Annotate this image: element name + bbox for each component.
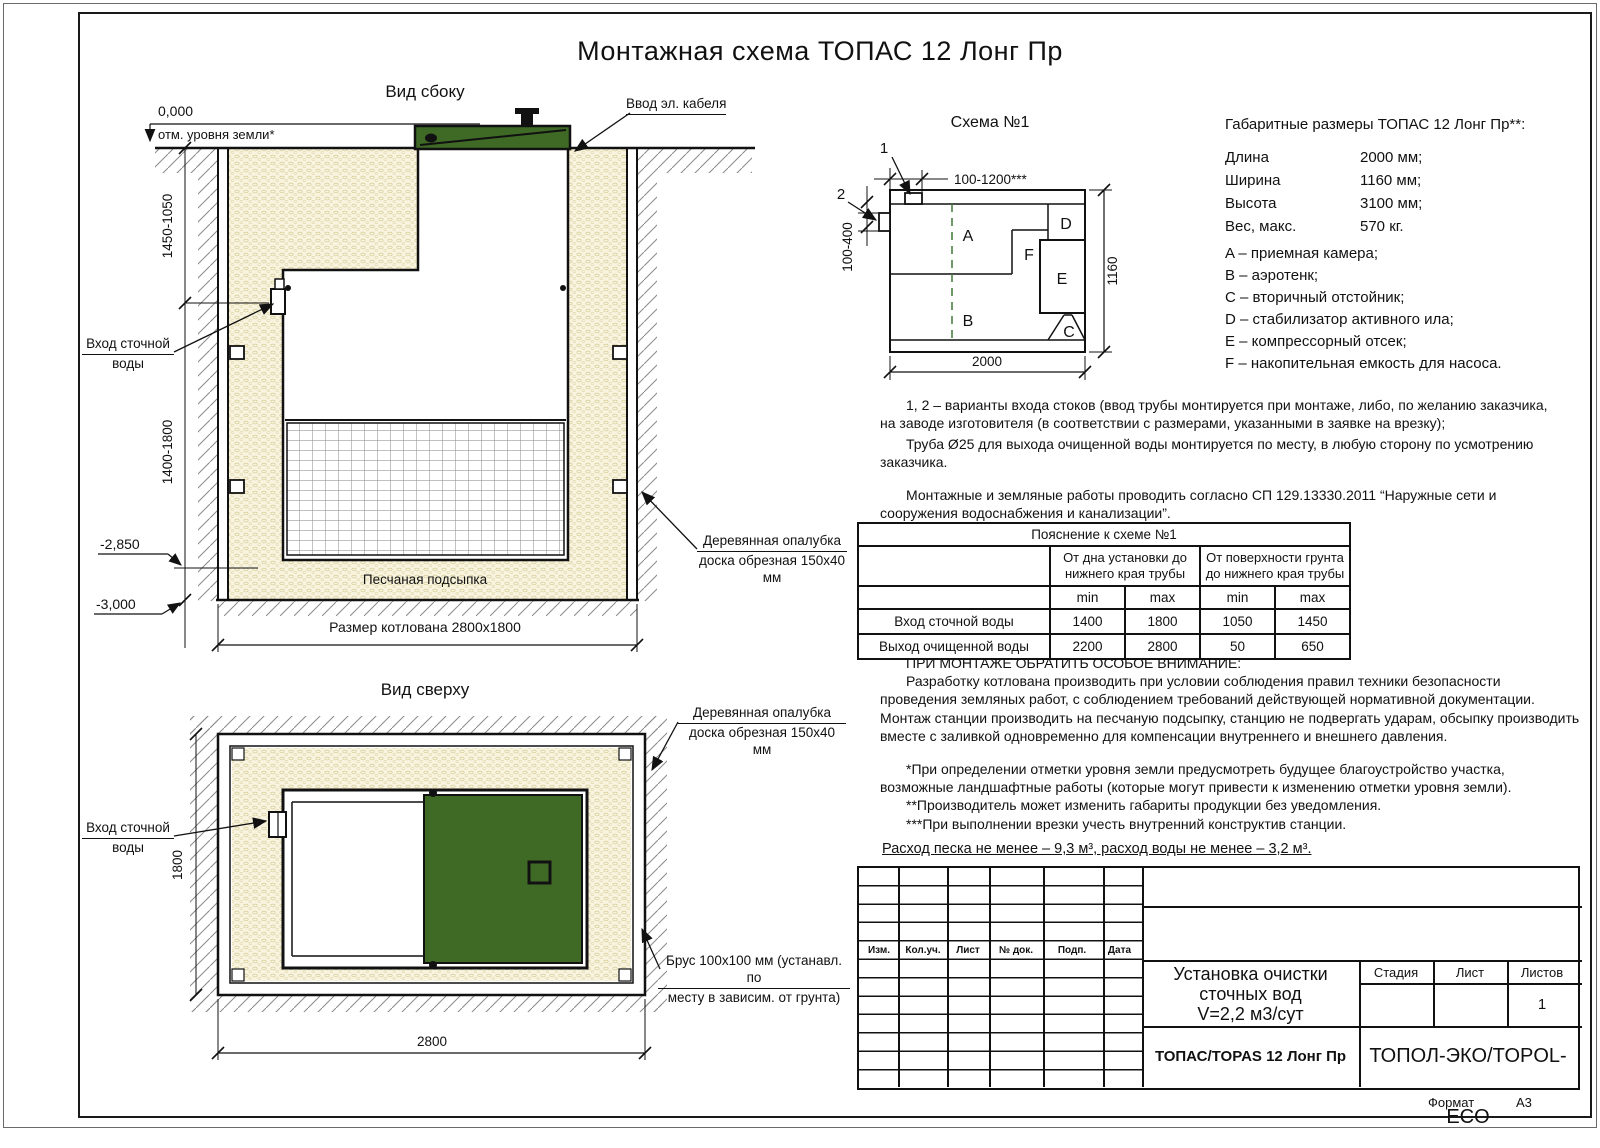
note-2: Труба Ø25 для выхода очищенной воды монт… [880, 435, 1556, 472]
legend-item: C – вторичный отстойник; [1225, 287, 1585, 309]
min-header: min [1200, 586, 1275, 609]
compartment-legend: A – приемная камера; B – аэротенк; C – в… [1225, 243, 1585, 375]
company-name: ТОПОЛ-ЭКО/TOPOL-ECO [1359, 1026, 1577, 1148]
tank-lid-top [424, 795, 582, 963]
max-header: max [1275, 586, 1350, 609]
inlet-label-top: Вход сточной воды [82, 820, 174, 857]
ground-level-label: отм. уровня земли* [158, 127, 275, 142]
top-view: 1800 2800 [170, 716, 678, 1060]
cable-entry-label: Ввод эл. кабеля [626, 96, 726, 115]
schema-explanation-table: Пояснение к схеме №1 От дна установки до… [857, 522, 1351, 660]
table-group-2: От поверхности грунта до нижнего края тр… [1200, 546, 1350, 586]
sheets-header: Листов [1507, 962, 1577, 983]
table-empty-cell [858, 546, 1050, 586]
schema-dim-top: 100-1200*** [954, 172, 1028, 187]
model-name: ТОПАС/TOPAS 12 Лонг Пр [1142, 1026, 1359, 1087]
legend-item: B – аэротенк; [1225, 265, 1585, 287]
inlet-label-side: Вход сточной воды [82, 336, 174, 373]
schema-comp-f: F [1024, 247, 1034, 264]
stamp-col-label: Изм. [859, 942, 899, 960]
bottom-elevation-mark: -3,000 [96, 596, 136, 612]
schema-comp-c: C [1063, 324, 1075, 341]
schema-ref-1: 1 [880, 140, 888, 157]
title-block: Изм. Кол.уч. Лист № док. Подп. Дата Уста… [857, 866, 1580, 1090]
schema-port-1 [905, 193, 922, 204]
lid-vent [515, 108, 539, 114]
spec-row: Высота3100 мм; [1225, 195, 1565, 212]
inlet-pipe-side [271, 289, 285, 314]
schema-comp-a: A [963, 228, 974, 245]
side-dim-lower: 1400-1800 [160, 420, 175, 485]
schema-dim-side: 100-400 [840, 222, 855, 272]
schema-ref-2: 2 [837, 186, 845, 203]
cable-leader [575, 113, 630, 151]
schema-dim-length: 2000 [972, 354, 1002, 369]
stamp-col-label: Кол.уч. [899, 942, 947, 960]
stamp-col-label: Дата [1101, 942, 1138, 960]
spec-row: Вес, макс.570 кг. [1225, 218, 1565, 235]
consumption-note: Расход песка не менее – 9,3 м³, расход в… [882, 841, 1582, 857]
installation-notes: 1, 2 – варианты входа стоков (ввод трубы… [880, 396, 1556, 525]
min-header: min [1050, 586, 1125, 609]
table-title: Пояснение к схеме №1 [858, 523, 1350, 546]
note-1: 1, 2 – варианты входа стоков (ввод трубы… [880, 396, 1556, 433]
legend-item: E – компрессорный отсек; [1225, 331, 1585, 353]
schema-comp-b: B [963, 313, 974, 330]
note-3: Монтажные и земляные работы проводить со… [880, 486, 1556, 523]
project-name: Установка очистки сточных вод V=2,2 м3/с… [1142, 964, 1359, 1024]
format-label: Формат [1428, 1095, 1474, 1110]
drawing-sheet: { "title": "Монтажная схема ТОПАС 12 Лон… [0, 0, 1600, 1131]
formwork-label-side: Деревянная опалубка доска обрезная 150x4… [697, 533, 847, 587]
footnotes-block: *При определении отметки уровня земли пр… [880, 760, 1580, 833]
footnote-1: *При определении отметки уровня земли пр… [880, 760, 1580, 796]
schema-port-2 [879, 213, 890, 231]
revision-grid-headers: Изм. Кол.уч. Лист № док. Подп. Дата [859, 942, 1142, 960]
sand-bed-label: Песчаная подсыпка [330, 572, 520, 587]
side-view-title: Вид сбоку [330, 82, 520, 102]
format-value: А3 [1516, 1095, 1532, 1110]
footnote-3: ***При выполнении врезки учесть внутренн… [880, 815, 1580, 833]
table-group-1: От дна установки до нижнего края трубы [1050, 546, 1200, 586]
stamp-col-label: № док. [989, 942, 1043, 960]
specs-title: Габаритные размеры ТОПАС 12 Лонг Пр**: [1225, 116, 1565, 133]
schema-dim-width: 1160 [1105, 256, 1120, 285]
beam-label-top: Брус 100x100 мм (устанавл. по месту в за… [658, 953, 850, 1007]
attention-block: ПРИ МОНТАЖЕ ОБРАТИТЬ ОСОБОЕ ВНИМАНИЕ: Ра… [880, 654, 1580, 745]
side-dim-upper: 1450-1050 [160, 194, 175, 259]
footnote-2: **Производитель может изменить габариты … [880, 796, 1580, 814]
top-view-title: Вид сверху [330, 680, 520, 700]
cable-entry-text: Ввод эл. кабеля [626, 96, 726, 115]
legend-item: D – стабилизатор активного ила; [1225, 309, 1585, 331]
schema-comp-e-label: E [1057, 271, 1068, 288]
schema-comp-d: D [1060, 216, 1072, 233]
attention-body: Разработку котлована производить при усл… [880, 672, 1580, 745]
pit-size-label: Размер котлована 2800x1800 [270, 619, 580, 635]
legend-item: F – накопительная емкость для насоса. [1225, 353, 1585, 375]
spec-row: Длина2000 мм; [1225, 149, 1565, 166]
stamp-col-label: Подп. [1043, 942, 1101, 960]
max-header: max [1125, 586, 1200, 609]
side-view: 1450-1050 1400-1800 [94, 108, 755, 652]
attention-heading: ПРИ МОНТАЖЕ ОБРАТИТЬ ОСОБОЕ ВНИМАНИЕ: [880, 654, 1580, 672]
sand-elevation-mark: -2,850 [100, 536, 140, 552]
legend-item: A – приемная камера; [1225, 243, 1585, 265]
top-dim-width: 2800 [417, 1034, 447, 1049]
table-row: Вход сточной воды 1400 1800 1050 1450 [858, 609, 1350, 634]
sheets-value: 1 [1507, 984, 1577, 1026]
drawing-title: Монтажная схема ТОПАС 12 Лонг Пр [520, 36, 1120, 67]
schema-title: Схема №1 [890, 114, 1090, 132]
formwork-label-top: Деревянная опалубка доска обрезная 150x4… [678, 705, 846, 759]
schema-1: 1 2 100-1200*** 100-400 2000 1160 A B C … [837, 140, 1120, 380]
zero-elevation-mark: 0,000 [158, 103, 193, 119]
stamp-col-label: Лист [947, 942, 989, 960]
tank-media-grid [287, 423, 564, 555]
spec-row: Ширина1160 мм; [1225, 172, 1565, 189]
stage-header: Стадия [1359, 962, 1433, 983]
revision-grid [859, 868, 1142, 1087]
sheet-header: Лист [1433, 962, 1507, 983]
overall-dimensions-block: Габаритные размеры ТОПАС 12 Лонг Пр**: Д… [1225, 116, 1565, 241]
